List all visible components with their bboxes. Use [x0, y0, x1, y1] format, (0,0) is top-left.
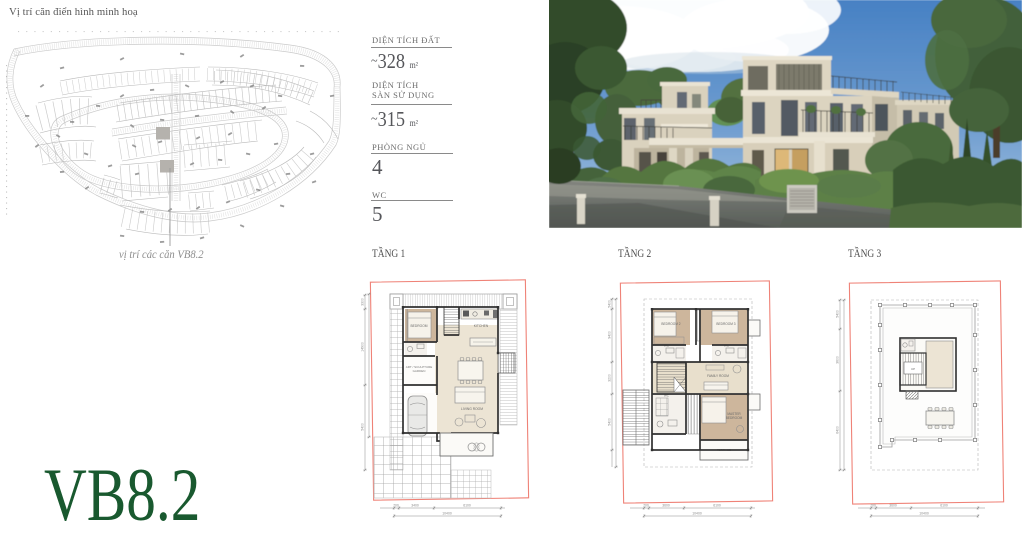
svg-text:3600: 3600	[836, 356, 840, 364]
svg-text:9400: 9400	[608, 331, 612, 339]
svg-text:10400: 10400	[919, 512, 929, 516]
svg-text:5400: 5400	[361, 423, 365, 431]
svg-text:3300: 3300	[361, 298, 365, 306]
svg-text:10400: 10400	[692, 512, 702, 516]
svg-text:GARDEN: GARDEN	[413, 369, 426, 373]
svg-text:BEDROOM 3: BEDROOM 3	[716, 322, 735, 326]
svg-text:BEDROOM 2: BEDROOM 2	[661, 322, 680, 326]
svg-text:3600: 3600	[889, 504, 897, 508]
svg-text:BEDROOM: BEDROOM	[410, 324, 427, 328]
svg-text:5400: 5400	[836, 310, 840, 318]
svg-text:KITCHEN: KITCHEN	[474, 324, 489, 328]
svg-text:700: 700	[870, 504, 876, 508]
svg-text:700: 700	[393, 504, 399, 508]
svg-text:5400: 5400	[608, 418, 612, 426]
svg-text:14900: 14900	[361, 342, 365, 352]
svg-text:BEDROOM: BEDROOM	[726, 416, 743, 420]
svg-text:3400: 3400	[411, 504, 419, 508]
svg-text:700: 700	[643, 504, 649, 508]
svg-text:5400: 5400	[608, 300, 612, 308]
svg-text:6100: 6100	[463, 504, 471, 508]
svg-text:3600: 3600	[662, 504, 670, 508]
svg-text:3200: 3200	[608, 374, 612, 382]
svg-text:6100: 6100	[713, 504, 721, 508]
svg-text:UP: UP	[911, 367, 915, 371]
svg-text:LIVING ROOM: LIVING ROOM	[461, 407, 483, 411]
svg-text:FAMILY ROOM: FAMILY ROOM	[707, 374, 729, 378]
svg-text:6400: 6400	[836, 426, 840, 434]
svg-text:6100: 6100	[940, 504, 948, 508]
svg-text:10400: 10400	[442, 512, 452, 516]
